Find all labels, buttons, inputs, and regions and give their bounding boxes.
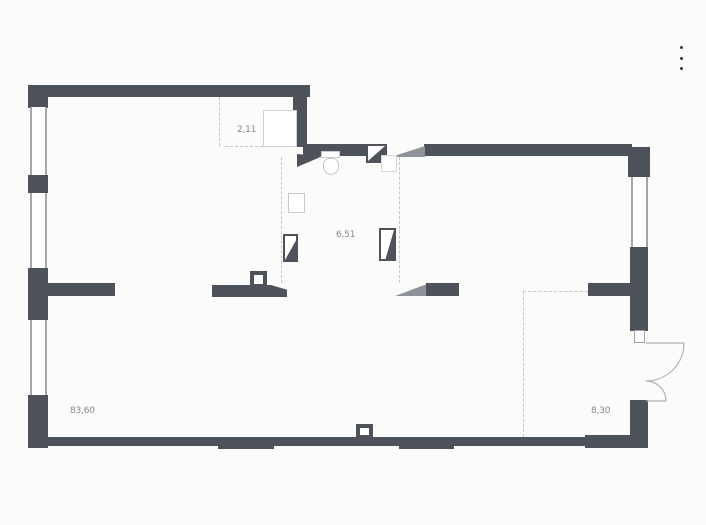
column-post-bottom — [356, 424, 373, 439]
area-label-entry: 8,30 — [591, 406, 610, 416]
window-left-1 — [30, 107, 47, 175]
wall-stub-mid-right — [426, 283, 459, 296]
wall-top-left-corner — [28, 85, 48, 108]
opening-wedge-mid — [395, 284, 427, 296]
window-left-3 — [30, 320, 47, 395]
dashed-line-entry-top — [523, 291, 588, 292]
window-right — [631, 177, 648, 247]
washer-outline — [288, 193, 305, 213]
door-leaf-corridor-right — [379, 228, 396, 261]
window-left-2 — [30, 193, 47, 268]
wall-bottom-pier-1 — [218, 437, 274, 449]
dashed-line-closet-left — [219, 97, 220, 146]
dashed-line-corridor-left — [281, 157, 282, 283]
wardrobe-outline — [263, 110, 297, 147]
wall-bottom — [28, 437, 648, 446]
entry-door-jamb — [634, 330, 645, 343]
wall-stub-mid-end — [271, 285, 287, 297]
wall-stub-left — [46, 283, 115, 296]
wall-left-pier-2 — [28, 268, 48, 320]
wall-upper-mid-right — [424, 144, 632, 156]
wall-stub-far-right — [588, 283, 632, 296]
door-leaf-corridor-left — [283, 234, 298, 262]
wall-bottom-right — [585, 435, 648, 448]
toilet-tank — [321, 151, 340, 158]
column-post-mid — [250, 271, 267, 288]
dashed-line-corridor-right — [399, 157, 400, 283]
wall-bottom-pier-2 — [399, 437, 454, 449]
kebab-menu-icon[interactable] — [676, 45, 686, 71]
area-label-corridor: 6,51 — [336, 230, 355, 240]
area-label-closet: 2,11 — [237, 125, 256, 135]
basin-outline — [381, 155, 397, 172]
floor-plan: 2,11 6,51 83,60 8,30 — [0, 0, 706, 525]
area-label-living: 83,60 — [70, 406, 95, 416]
dashed-line-closet-bottom — [225, 146, 263, 147]
dashed-line-entry-left — [523, 292, 524, 437]
toilet-bowl — [323, 158, 339, 175]
wall-top — [30, 85, 310, 97]
wall-left-pier-1 — [28, 175, 48, 193]
wall-right-mid — [630, 247, 648, 331]
wall-top-right-corner — [628, 147, 650, 177]
